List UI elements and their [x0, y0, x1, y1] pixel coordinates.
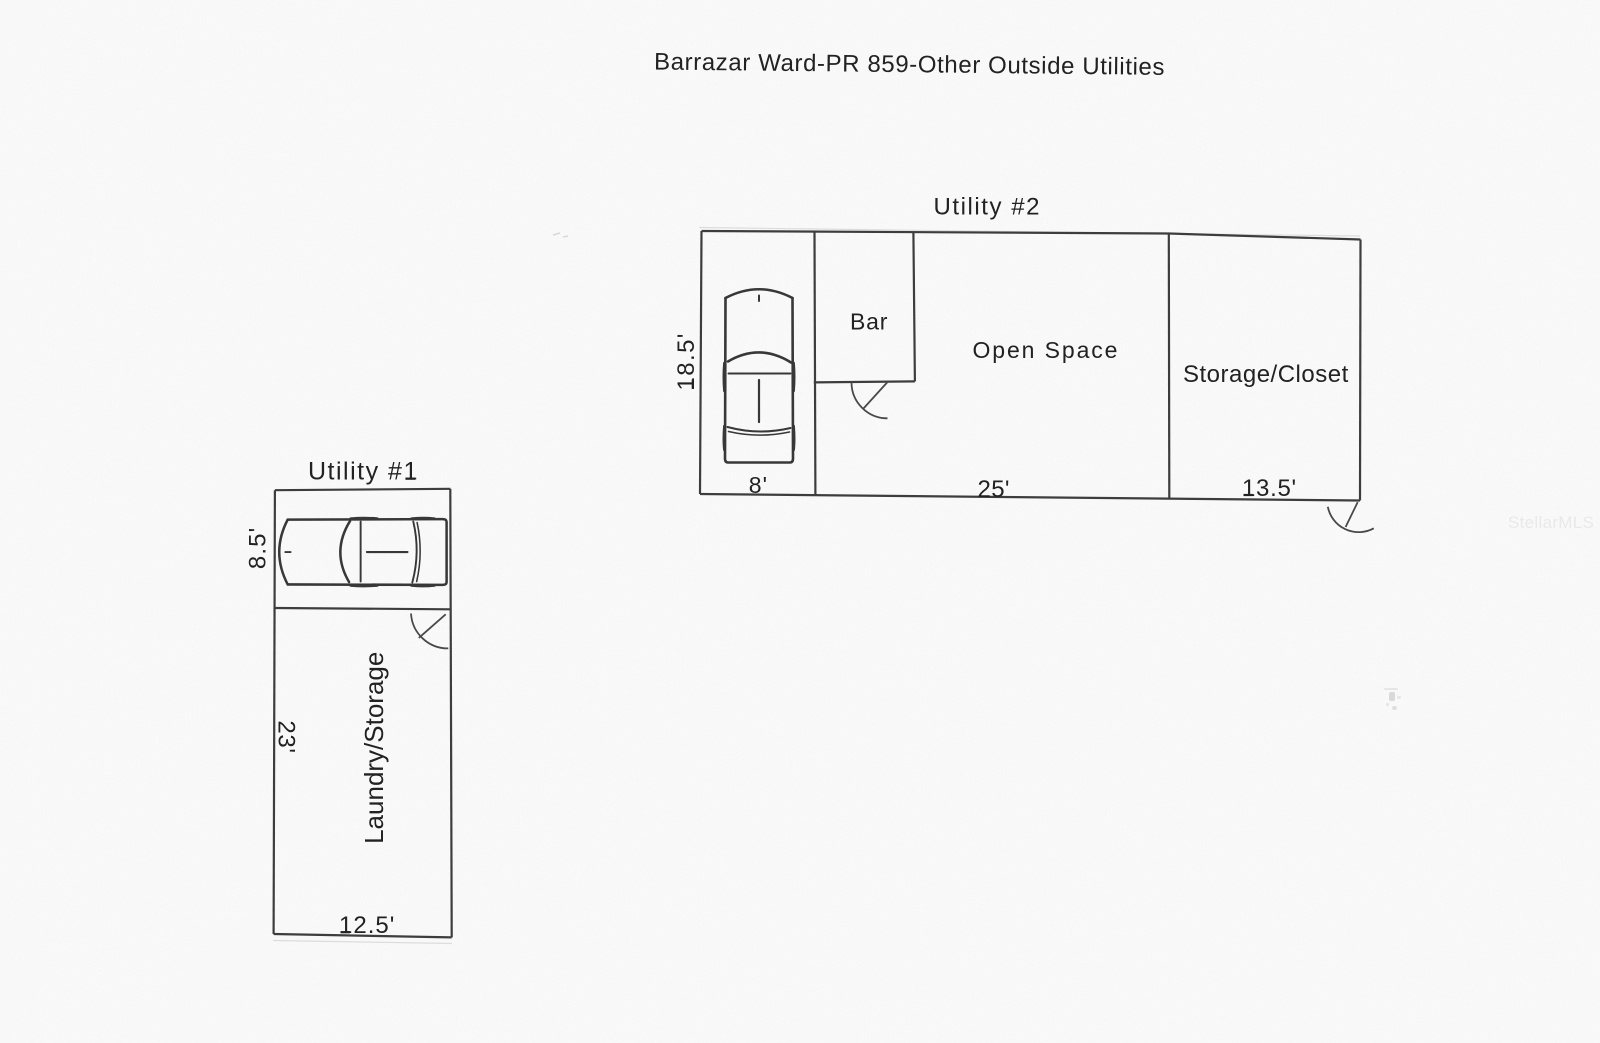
svg-text:Utility #1: Utility #1	[308, 458, 419, 486]
svg-text:12.5': 12.5'	[339, 912, 395, 939]
svg-text:Storage/Closet: Storage/Closet	[1183, 361, 1349, 388]
svg-text:18.5': 18.5'	[673, 332, 700, 390]
svg-text:Barrazar Ward-PR 859-Other Out: Barrazar Ward-PR 859-Other Outside Utili…	[654, 49, 1165, 81]
svg-text:Bar: Bar	[850, 308, 888, 334]
svg-text:Utility #2: Utility #2	[934, 194, 1042, 221]
svg-text:23': 23'	[273, 720, 300, 753]
svg-text:8.5': 8.5'	[244, 527, 271, 569]
svg-text:25': 25'	[978, 476, 1010, 503]
svg-text:Laundry/Storage: Laundry/Storage	[359, 652, 389, 844]
svg-text:StellarMLS: StellarMLS	[1508, 513, 1594, 532]
svg-text:13.5': 13.5'	[1242, 475, 1297, 502]
svg-text:8': 8'	[749, 472, 768, 498]
svg-text:Open Space: Open Space	[973, 337, 1120, 363]
